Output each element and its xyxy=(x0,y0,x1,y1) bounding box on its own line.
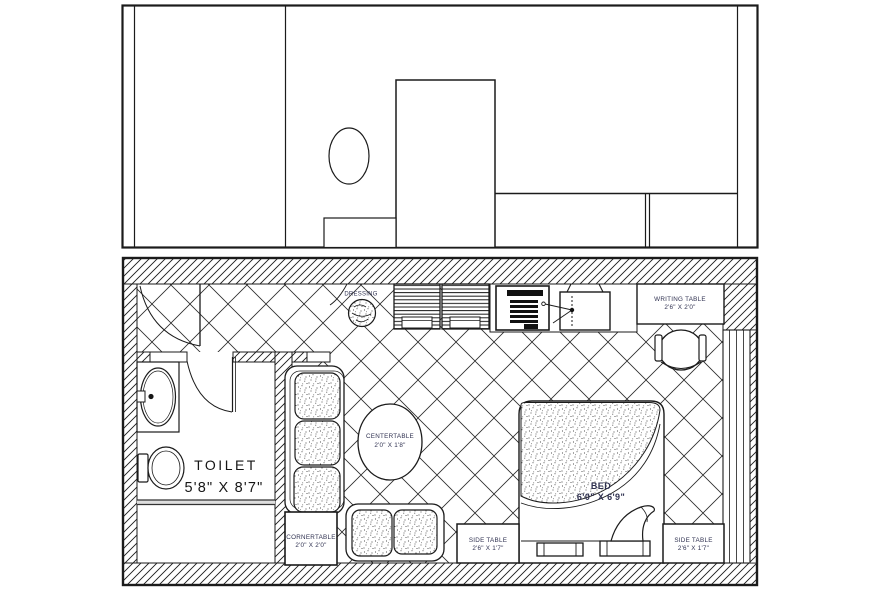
sofa-cushion xyxy=(352,510,392,556)
writing-table: WRITING TABLE 2'6" X 2'0" xyxy=(637,284,724,324)
tv-unit xyxy=(496,286,549,330)
wall-left xyxy=(123,284,137,563)
side-table-left-label: SIDE TABLE xyxy=(469,537,507,544)
floor-plan: TOILET 5'8" X 8'7" DRESSING xyxy=(123,258,757,585)
center-table: CENTERTABLE 2'0" X 1'8" xyxy=(358,404,422,480)
corner-table-label: CORNERTABLE xyxy=(286,534,335,541)
center-table-size-label: 2'0" X 1'8" xyxy=(374,442,405,449)
elevation-low-step xyxy=(324,218,396,248)
toilet-wall-top-a xyxy=(137,352,150,362)
wall-top xyxy=(123,258,757,284)
elevation-drawing xyxy=(123,6,758,248)
cad-canvas: TOILET 5'8" X 8'7" DRESSING xyxy=(0,0,870,591)
bed-label: BED xyxy=(591,481,611,491)
side-table-left-size-label: 2'6" X 1'7" xyxy=(472,545,503,552)
washbasin xyxy=(137,362,179,432)
wall-bottom xyxy=(123,563,757,585)
bed: BED 6'0" X 6'9" xyxy=(519,401,664,563)
dressing-label: DRESSING xyxy=(344,292,377,298)
toilet-wall-top-frame xyxy=(150,352,187,362)
elevation-tall-cabinet xyxy=(396,80,495,248)
center-table-label: CENTERTABLE xyxy=(366,433,414,440)
toilet-label: TOILET xyxy=(194,457,258,473)
writing-table-label: WRITING TABLE xyxy=(654,296,706,303)
toilet-size-label: 5'8" X 8'7" xyxy=(184,480,263,496)
corner-table: CORNERTABLE 2'0" X 2'0" xyxy=(285,512,337,565)
bed-bench-left xyxy=(537,543,583,556)
side-table-right: SIDE TABLE 2'6" X 1'7" xyxy=(663,524,724,563)
sofa-cushion xyxy=(295,373,340,419)
sofa-cushion xyxy=(394,510,437,554)
wardrobe xyxy=(394,284,489,329)
wall-right-pier xyxy=(723,284,757,330)
toilet-divider xyxy=(137,500,275,505)
sofa-cushion xyxy=(295,421,340,465)
tap-icon xyxy=(148,394,153,399)
side-table-right-size-label: 2'6" X 1'7" xyxy=(678,545,709,552)
bed-bench-right xyxy=(600,541,650,556)
bed-size-label: 6'0" X 6'9" xyxy=(577,492,625,502)
sofa-left xyxy=(285,366,344,514)
side-table-right-label: SIDE TABLE xyxy=(674,537,712,544)
side-table-left: SIDE TABLE 2'6" X 1'7" xyxy=(457,524,519,563)
sofa-cushion xyxy=(294,467,340,512)
partition-stub xyxy=(292,352,307,362)
corner-table-size-label: 2'0" X 2'0" xyxy=(295,542,326,549)
writing-table-size-label: 2'6" X 2'0" xyxy=(664,304,695,311)
window-right xyxy=(723,330,750,563)
partition-stub-end xyxy=(307,352,330,362)
sofa-bottom xyxy=(346,504,444,561)
cad-drawing-page: TOILET 5'8" X 8'7" DRESSING xyxy=(0,0,870,591)
toilet-wall-top-b xyxy=(233,352,275,362)
